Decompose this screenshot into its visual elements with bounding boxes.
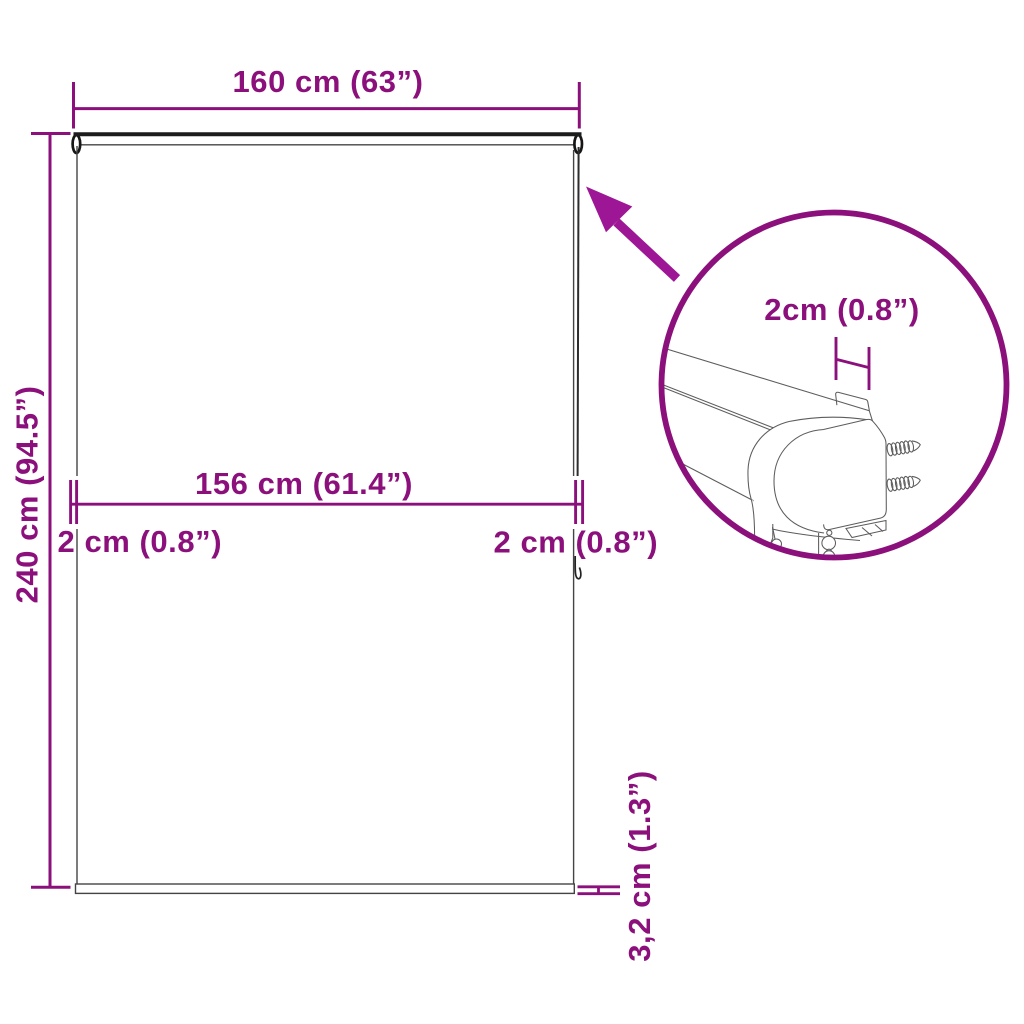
svg-text:160 cm (63”): 160 cm (63”) [233, 64, 424, 99]
svg-text:2 cm (0.8”): 2 cm (0.8”) [58, 524, 223, 559]
svg-text:2cm (0.8”): 2cm (0.8”) [764, 292, 919, 327]
svg-text:240 cm (94.5”): 240 cm (94.5”) [10, 386, 45, 604]
svg-text:3,2 cm (1.3”): 3,2 cm (1.3”) [622, 770, 657, 962]
svg-text:2 cm (0.8”): 2 cm (0.8”) [494, 525, 659, 560]
svg-text:156 cm (61.4”): 156 cm (61.4”) [195, 466, 413, 501]
